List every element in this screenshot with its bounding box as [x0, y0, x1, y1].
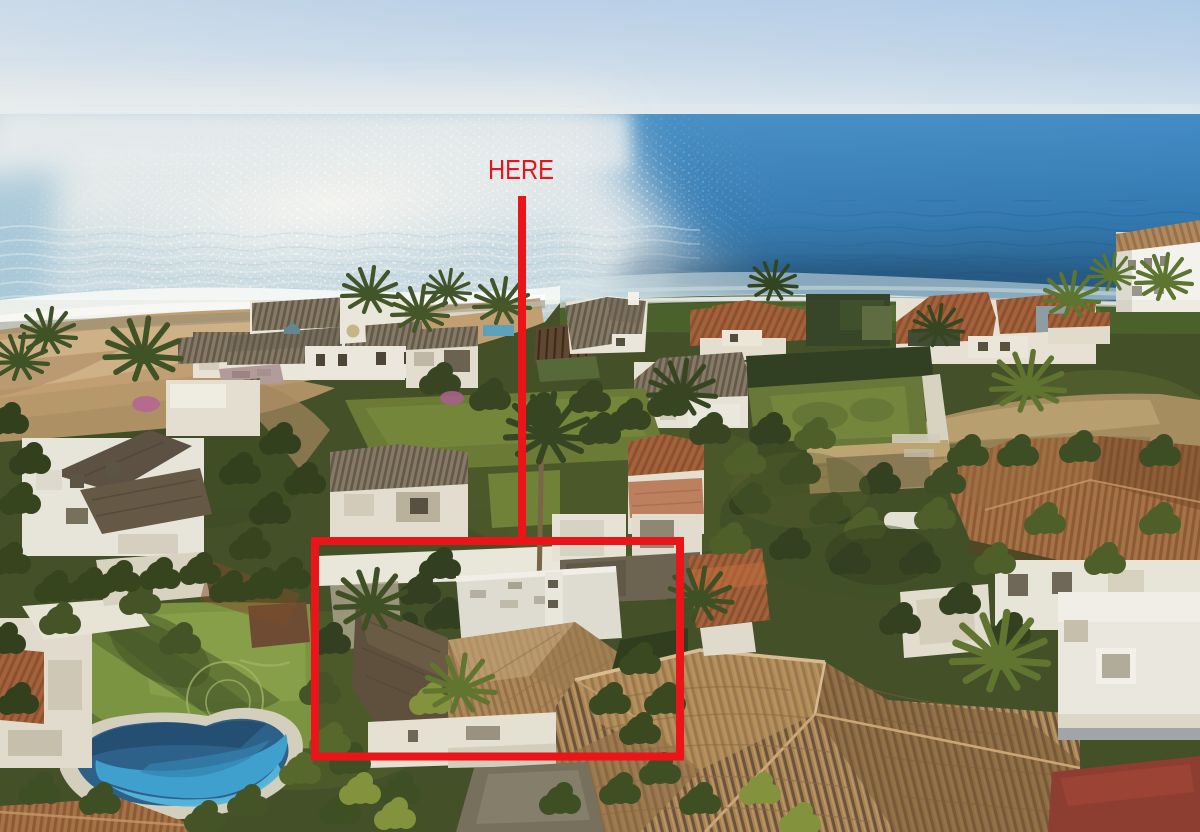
svg-text:HERE: HERE — [488, 154, 554, 185]
